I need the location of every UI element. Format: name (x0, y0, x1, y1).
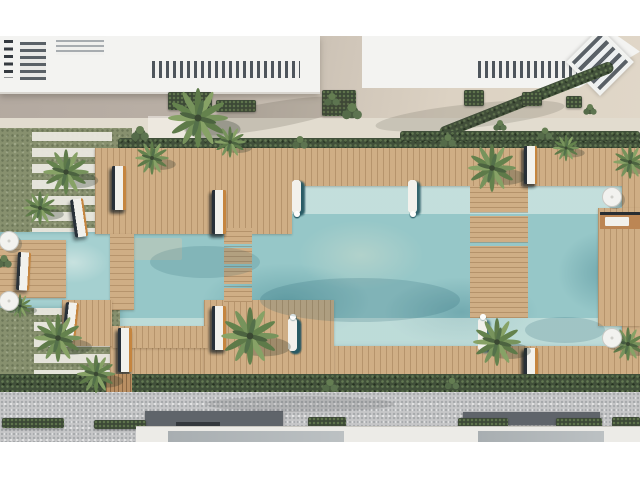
submerged-step (134, 238, 182, 260)
window-row (4, 40, 13, 78)
garden-gate (106, 374, 132, 394)
timber-bridge-left (224, 228, 252, 302)
planter-box (464, 90, 484, 106)
planter-box (2, 418, 64, 428)
roof-louvres (152, 61, 300, 78)
pergola-slats (56, 40, 104, 55)
planter-box (216, 100, 256, 112)
top-margin (0, 0, 640, 36)
hedge-strip (400, 131, 640, 141)
planter-box (522, 92, 542, 106)
resort-pool-aerial-render (0, 0, 640, 480)
planter-box (566, 96, 582, 108)
roof-louvres (478, 61, 582, 78)
pergola-slats (20, 42, 46, 80)
hedge-strip (0, 374, 640, 394)
planter-box (168, 92, 212, 110)
glass-canopy (478, 431, 604, 442)
planter-box (322, 90, 356, 116)
timber-causeway (110, 234, 134, 310)
timber-jetty (0, 240, 66, 298)
bottom-margin (0, 442, 640, 480)
glass-canopy (168, 431, 344, 442)
timber-pier-right (470, 186, 528, 318)
